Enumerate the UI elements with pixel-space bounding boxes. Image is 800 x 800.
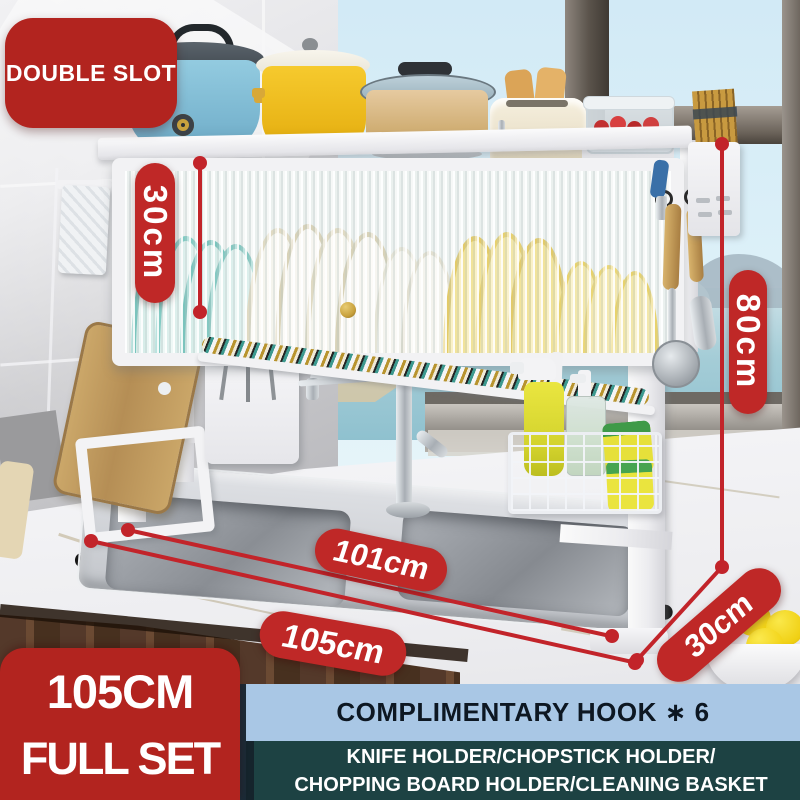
wire-basket [508,432,662,514]
window-frame-right [782,0,800,452]
dot-cabinet-top [193,156,207,170]
soap-pump-spout [570,374,586,383]
toaster-slot [506,100,568,107]
ladle-stem [668,288,676,346]
blue-pot-dial [172,114,194,136]
faucet-base [386,502,430,518]
cage-vent-1 [696,198,710,203]
cutting-board-hole [158,382,171,395]
product-infographic: DOUBLE SLOT 30cm 80cm 101cm 105cm 30cm C… [0,0,800,800]
full-set-line1: 105CM [47,664,194,719]
dot-height-bottom [715,560,729,574]
faucet-column [396,374,412,512]
cabinet-height-badge: 30cm [135,163,175,303]
ladle-bowl [652,340,700,388]
includes-line2: CHOPPING BOARD HOLDER/CLEANING BASKET [294,771,767,799]
cabinet-height-label: 30cm [136,185,174,281]
towel [58,185,111,275]
dot-inner-left [121,523,135,537]
cage-vent-3 [698,212,712,217]
cabinet-knob [340,302,356,318]
spray-bottle-nozzle [510,362,524,374]
complimentary-label: COMPLIMENTARY HOOK ∗ 6 [336,697,709,728]
total-height-badge: 80cm [729,270,767,414]
complimentary-banner: COMPLIMENTARY HOOK ∗ 6 [246,684,800,741]
full-set-line2: FULL SET [21,733,219,785]
dot-cabinet-bottom [193,305,207,319]
cabinet-height-line [198,163,202,313]
double-slot-badge: DOUBLE SLOT [5,18,177,128]
includes-banner: KNIFE HOLDER/CHOPSTICK HOLDER/ CHOPPING … [246,741,800,800]
dot-inner-right [605,629,619,643]
ladle-handle [663,204,682,291]
dot-outer-left [84,534,98,548]
chopstick-cage [688,142,740,236]
total-height-label: 80cm [729,294,767,390]
includes-line1: KNIFE HOLDER/CHOPSTICK HOLDER/ [347,743,716,771]
full-set-box: 105CM FULL SET [0,648,240,800]
dot-height-top [715,137,729,151]
berry-container-lid [583,96,675,110]
total-height-line [720,144,724,568]
double-slot-label: DOUBLE SLOT [6,60,176,87]
board-holder-frame [75,425,215,544]
dot-outer-right [628,656,642,670]
fluted-glass-overlay [125,171,671,353]
yellow-pot-handle-left [252,88,265,98]
